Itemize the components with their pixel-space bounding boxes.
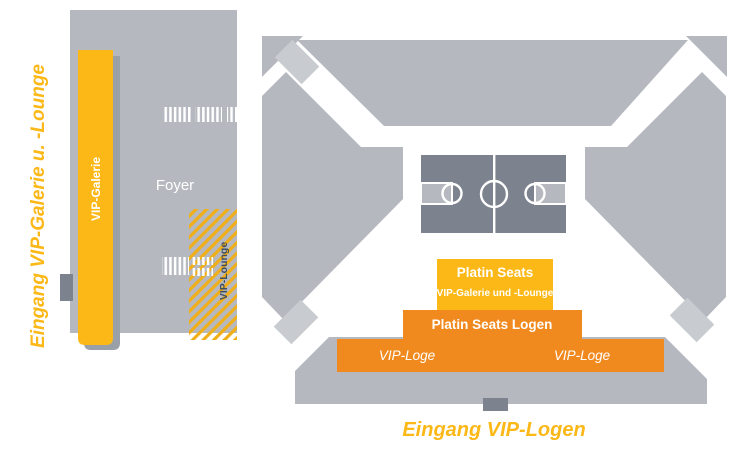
shell-corner-ne xyxy=(686,36,727,77)
south-entrance-door xyxy=(483,398,508,411)
vip-loge-left-label: VIP-Loge xyxy=(379,348,435,363)
vip-galerie-label: VIP-Galerie xyxy=(89,157,103,221)
seating-map-canvas: Eingang VIP-Galerie u. -Lounge Foyer VIP… xyxy=(0,0,748,459)
foyer-label: Foyer xyxy=(156,177,194,194)
left-entrance-label: Eingang VIP-Galerie u. -Lounge xyxy=(28,64,49,348)
platin-logen-label: Platin Seats Logen xyxy=(432,317,553,332)
stand-north xyxy=(297,40,688,126)
vip-lounge-label: VIP-Lounge xyxy=(218,242,230,300)
court-center-line xyxy=(493,155,495,233)
basketball-court xyxy=(421,155,566,233)
bottom-entrance-label: Eingang VIP-Logen xyxy=(402,419,585,441)
foyer-side-door xyxy=(60,274,73,301)
platin-seats-subtitle: VIP-Galerie und -Lounge xyxy=(437,288,554,299)
platin-seats-title: Platin Seats xyxy=(457,265,534,280)
vip-loge-right-label: VIP-Loge xyxy=(554,348,610,363)
vip-seating-map: Eingang VIP-Galerie u. -Lounge Foyer VIP… xyxy=(0,0,748,459)
